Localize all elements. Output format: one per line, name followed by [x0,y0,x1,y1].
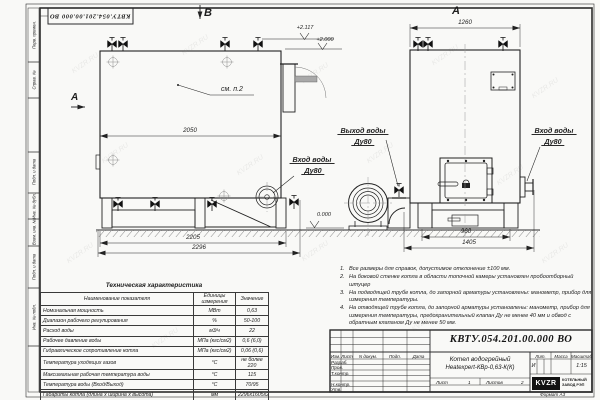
note-number: 2. [340,274,349,289]
col-value: Значение [236,293,269,306]
tech-table: Наименование показателя Единицы измерени… [40,292,269,400]
table-row: Температура уходящих газов°Сне более 220 [41,356,269,369]
table-row: Гидравлическое сопротивление котлаМПа (к… [41,346,269,356]
tb-sheet-label: Лист [436,380,448,385]
format-label: Формат А3 [540,393,565,398]
water-inlet-label: Вход воды [290,156,335,164]
dim-960: 960 [461,229,471,235]
note-item: 1.Все размеры для справок, допустимое от… [340,266,592,273]
tb-masshtab-header: Масштаб [571,354,592,359]
row-unit: МПа (кгс/см2) [194,336,236,346]
dimension-lines [98,24,534,257]
note-item: 3.На подводящей трубе котла, до запорной… [340,290,592,305]
row-value: 50-100 [236,316,269,326]
elevation-mark: +2.000 [316,38,333,44]
title-block-doc-number: КВТУ.054.201.00.000 ВО [430,334,592,345]
row-name: Гидравлическое сопротивление котла [41,346,194,356]
water-outlet-label: Выход воды [337,127,388,135]
tb-scale-value: 1:15 [571,363,592,369]
elevation-mark: +2.117 [297,26,314,32]
ground [96,230,540,237]
row-value: не более 220 [236,356,269,369]
row-value: 2296х1605х2117 [236,390,269,400]
elevation-mark: 0.000 [317,213,331,219]
tb-col-doc: N докум. [353,354,383,359]
tb-sheet-value: 1 [468,380,471,385]
row-unit: °С [194,356,236,369]
watermark: KVZR.RU [181,34,210,57]
col-name: Наименование показателя [41,293,194,306]
row-unit: м3/ч [194,326,236,336]
dim-2050: 2050 [183,128,197,134]
note-text: На подводящей трубе котла, до запорной а… [349,290,592,305]
tb-sheets-label: Листов [486,380,503,385]
section-a-label: А [71,93,78,103]
note-number: 1. [340,266,349,273]
row-name: Диапазон рабочего регулирования [41,316,194,326]
watermark: KVZR.RU [431,44,460,67]
frame-strip-label: Подп. и дата [31,159,36,185]
tb-lit-header: Лит. [530,354,551,359]
tb-row-prov: Пров. [331,365,343,370]
watermark: KVZR.RU [531,77,560,100]
row-name: Расход воды [41,326,194,336]
product-name: Котел водогрейный [430,356,530,363]
table-row: Расход водым3/ч22 [41,326,269,336]
dim-2296: 2296 [192,245,206,251]
row-value: 0,06 (0,6) [236,346,269,356]
tb-col-list: Лист [341,354,353,359]
row-unit: МПа (кгс/см2) [194,346,236,356]
watermark: KVZR.RU [66,242,95,265]
tb-col-izm: Изм. [330,354,341,359]
dim-1260: 1260 [458,20,472,26]
notes-list: 1.Все размеры для справок, допустимое от… [340,266,592,328]
dim-1405: 1405 [462,240,476,246]
boiler-side-view [96,51,326,228]
row-name: Габариты котла (длина х ширина х высота) [41,390,194,400]
center-marks [107,56,234,203]
col-unit: Единицы измерения [194,293,236,306]
watermark: KVZR.RU [496,164,525,187]
frame-strip-label: Справ. № [31,70,36,89]
dim-2205: 2205 [186,235,200,241]
row-unit: мм [194,390,236,400]
frame-strip-label: Инв. № дубл. [31,193,36,219]
row-name: Температура уходящих газов [41,356,194,369]
logo-caption-line2: ЗАВОД РЭП [562,383,587,388]
water-inlet-a-label: Вход воды [532,127,577,135]
tech-table-header: Наименование показателя Единицы измерени… [41,293,269,306]
see-note-label: см. п.2 [221,86,243,93]
row-value: 0,6 (6,0) [236,336,269,346]
table-row: Номинальная мощностьМВт0,63 [41,306,269,316]
note-number: 3. [340,290,349,305]
row-name: Номинальная мощность [41,306,194,316]
tb-col-podp: Подп. [383,354,407,359]
watermark: KVZR.RU [101,142,130,165]
table-row: Рабочее давление водыМПа (кгс/см2)0,6 (6… [41,336,269,346]
row-name: Максимальная рабочая температура воды [41,369,194,379]
watermark: KVZR.RU [71,52,100,75]
tb-row-utv: Утв. [331,387,341,392]
top-stamp-doc-number: КВТУ.054.201.00.000 ВО [49,13,130,20]
frame-strip-label: Взам. инв. № [31,219,36,245]
row-value: 0,63 [236,306,269,316]
frame-strip-label: Перв. примен. [31,21,36,49]
note-text: На отводящей трубе котла, до запорной ар… [349,305,592,327]
product-model: Heatexpert-КВр-0,63-К(К) [430,365,530,371]
tb-lit-value: И [530,363,537,369]
note-item: 2.На боковой стенке котла в области топо… [340,274,592,289]
tb-sheets-value: 2 [521,380,524,385]
kvzr-logo: KVZR [532,377,560,390]
table-row: Температура воды (Вход/Выход)°С70/95 [41,380,269,390]
leaders [71,5,540,228]
tech-table-title: Техническая характеристика [106,283,202,289]
row-value: 115 [236,369,269,379]
frame-strip-label: Инв. № подл. [31,304,36,330]
watermark: KVZR.RU [301,62,330,85]
view-b-label: В [204,8,212,19]
tb-row-nkontr: Н.контр. [331,382,350,387]
frame-strip-label: Подп. и дата [31,254,36,280]
watermark: KVZR.RU [301,240,330,263]
row-name: Температура воды (Вход/Выход) [41,380,194,390]
view-a-label: А [452,6,460,17]
drawing-sheet: KVZR.RU KVZR.RU KVZR.RU KVZR.RU KVZR.RU … [0,0,600,400]
row-unit: МВт [194,306,236,316]
water-inlet-a-dn: Ду80 [541,138,564,146]
note-item: 4.На отводящей трубе котла, до запорной … [340,305,592,327]
tb-row-tkontr: Т.контр. [331,371,350,376]
valves [108,38,508,212]
note-text: На боковой стенке котла в области топочн… [349,274,592,289]
table-row: Габариты котла (длина х ширина х высота)… [41,390,269,400]
table-row: Диапазон рабочего регулирования%50-100 [41,316,269,326]
note-text: Все размеры для справок, допустимое откл… [349,266,510,273]
fan [349,184,411,231]
row-unit: % [194,316,236,326]
row-value: 22 [236,326,269,336]
watermark: KVZR.RU [236,154,265,177]
kvzr-logo-caption: КОТЕЛЬНЫЙ ЗАВОД РЭП [562,378,587,389]
watermark: KVZR.RU [541,242,570,265]
boiler-front-view [410,50,533,228]
note-number: 4. [340,305,349,327]
table-row: Максимальная рабочая температура воды°С1… [41,369,269,379]
row-value: 70/95 [236,380,269,390]
row-unit: °С [194,369,236,379]
tb-massa-header: Масса [551,354,571,359]
row-name: Рабочее давление воды [41,336,194,346]
water-inlet-dn: Ду80 [301,167,324,175]
row-unit: °С [194,380,236,390]
tb-row-razrab: Разраб. [331,360,348,365]
tb-col-data: Дата [407,354,430,359]
water-outlet-dn: Ду80 [351,138,374,146]
